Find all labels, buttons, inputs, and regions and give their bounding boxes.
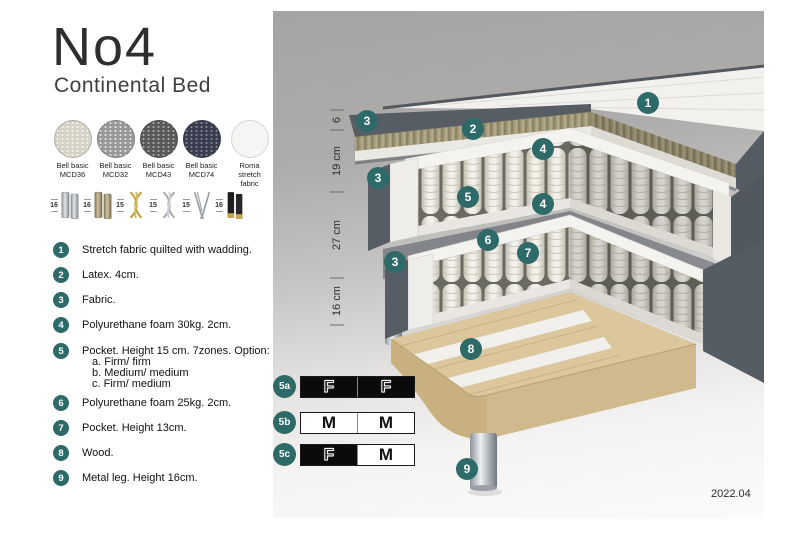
badge-2: 2 xyxy=(462,118,484,140)
leg-option: 15 xyxy=(148,188,181,222)
svg-text:5: 5 xyxy=(465,190,472,204)
part-item-8: 8 Wood. xyxy=(53,445,114,461)
svg-text:6: 6 xyxy=(485,233,492,247)
dim-label-27cm: 27 cm xyxy=(331,220,343,250)
leg-hairpin-icon xyxy=(191,188,213,222)
leg-cylinder-bronze-icon xyxy=(92,188,114,222)
firmness-badge: 5c xyxy=(273,443,296,466)
badge-7: 7 xyxy=(517,242,539,264)
part-number-badge: 1 xyxy=(53,242,69,258)
part-item-5: 5 Pocket. Height 15 cm. 7zones. Option: xyxy=(53,343,270,359)
page-subtitle: Continental Bed xyxy=(54,74,211,98)
svg-text:1: 1 xyxy=(645,96,652,110)
dim-label-6: 6 xyxy=(331,117,343,123)
part-item-2: 2 Latex. 4cm. xyxy=(53,267,139,283)
part-item-4: 4 Polyurethane foam 30kg. 2cm. xyxy=(53,317,231,333)
badge-9: 9 xyxy=(456,458,478,480)
fabric-swatch-icon xyxy=(140,120,178,158)
leg-options: 16 16 15 15 xyxy=(49,188,247,222)
svg-text:3: 3 xyxy=(364,114,371,128)
svg-text:9: 9 xyxy=(464,462,471,476)
svg-text:3: 3 xyxy=(392,255,399,269)
firmness-cell: F xyxy=(301,377,357,397)
dim-label-19cm: 19 cm xyxy=(331,146,343,176)
part-item-7: 7 Pocket. Height 13cm. xyxy=(53,420,187,436)
leg-option: 16 xyxy=(214,188,247,222)
firmness-row-5a: 5a F F xyxy=(273,375,415,398)
dim-label-16cm: 16 cm xyxy=(331,286,343,316)
leg-cylinder-black-gold-icon xyxy=(224,188,246,222)
svg-text:2: 2 xyxy=(470,122,477,136)
badge-1: 1 xyxy=(637,92,659,114)
fabric-swatch: Bell basicMCD74 xyxy=(182,120,221,188)
badge-3-top: 3 xyxy=(356,110,378,132)
svg-text:4: 4 xyxy=(540,142,547,156)
badge-6: 6 xyxy=(477,229,499,251)
leg-option: 16 xyxy=(82,188,115,222)
badge-8: 8 xyxy=(460,338,482,360)
version-label: 2022.04 xyxy=(711,488,751,500)
firmness-badge: 5b xyxy=(273,411,296,434)
firmness-cell: M xyxy=(357,413,414,433)
badge-4-upper: 4 xyxy=(532,138,554,160)
part-number-badge: 2 xyxy=(53,267,69,283)
page-title: No4 xyxy=(52,16,157,78)
fabric-swatch: Bell basicMCD43 xyxy=(139,120,178,188)
fabric-swatch: Bell basicMCD32 xyxy=(96,120,135,188)
fabric-swatch-icon xyxy=(183,120,221,158)
firmness-row-5c: 5c F M xyxy=(273,443,415,466)
part-item-1: 1 Stretch fabric quilted with wadding. xyxy=(53,242,252,258)
firmness-row-5b: 5b M M xyxy=(273,411,415,434)
badge-5: 5 xyxy=(457,186,479,208)
leg-twist-gold-icon xyxy=(125,188,147,222)
part-number-badge: 8 xyxy=(53,445,69,461)
leg-option: 15 xyxy=(115,188,148,222)
leg-option: 16 xyxy=(49,188,82,222)
bed-cutaway-panel: 6 19 cm 27 cm 16 cm 1 2 3 3 3 4 4 5 6 7 … xyxy=(273,11,764,518)
part-5-option-c: c. Firm/ medium xyxy=(92,378,171,390)
badge-4-lower: 4 xyxy=(532,193,554,215)
part-number-badge: 9 xyxy=(53,470,69,486)
firmness-cell: M xyxy=(357,445,414,465)
leg-cylinder-silver-icon xyxy=(59,188,81,222)
part-number-badge: 7 xyxy=(53,420,69,436)
fabric-swatch: Bell basicMCD36 xyxy=(53,120,92,188)
part-number-badge: 6 xyxy=(53,395,69,411)
part-number-badge: 5 xyxy=(53,343,69,359)
firmness-badge: 5a xyxy=(273,375,296,398)
firmness-cell: M xyxy=(301,413,357,433)
fabric-swatch-icon xyxy=(54,120,92,158)
badge-3-lower: 3 xyxy=(384,251,406,273)
part-item-6: 6 Polyurethane foam 25kg. 2cm. xyxy=(53,395,231,411)
fabric-swatches: Bell basicMCD36 Bell basicMCD32 Bell bas… xyxy=(53,120,269,188)
svg-text:8: 8 xyxy=(468,342,475,356)
part-item-9: 9 Metal leg. Height 16cm. xyxy=(53,470,198,486)
firmness-cell: F xyxy=(301,445,357,465)
part-number-badge: 3 xyxy=(53,292,69,308)
fabric-swatch: Romastretch fabric xyxy=(230,120,269,188)
badge-3-middle: 3 xyxy=(367,167,389,189)
fabric-swatch-icon xyxy=(231,120,269,158)
fabric-swatch-icon xyxy=(97,120,135,158)
svg-text:4: 4 xyxy=(540,197,547,211)
dimension-scale: 6 19 cm 27 cm 16 cm xyxy=(330,110,344,325)
svg-text:3: 3 xyxy=(375,171,382,185)
firmness-cell: F xyxy=(357,377,414,397)
part-item-3: 3 Fabric. xyxy=(53,292,116,308)
bed-cutaway-illustration: 6 19 cm 27 cm 16 cm 1 2 3 3 3 4 4 5 6 7 … xyxy=(273,11,764,518)
leg-option: 15 xyxy=(181,188,214,222)
svg-text:7: 7 xyxy=(525,246,532,260)
part-number-badge: 4 xyxy=(53,317,69,333)
leg-twist-silver-icon xyxy=(158,188,180,222)
